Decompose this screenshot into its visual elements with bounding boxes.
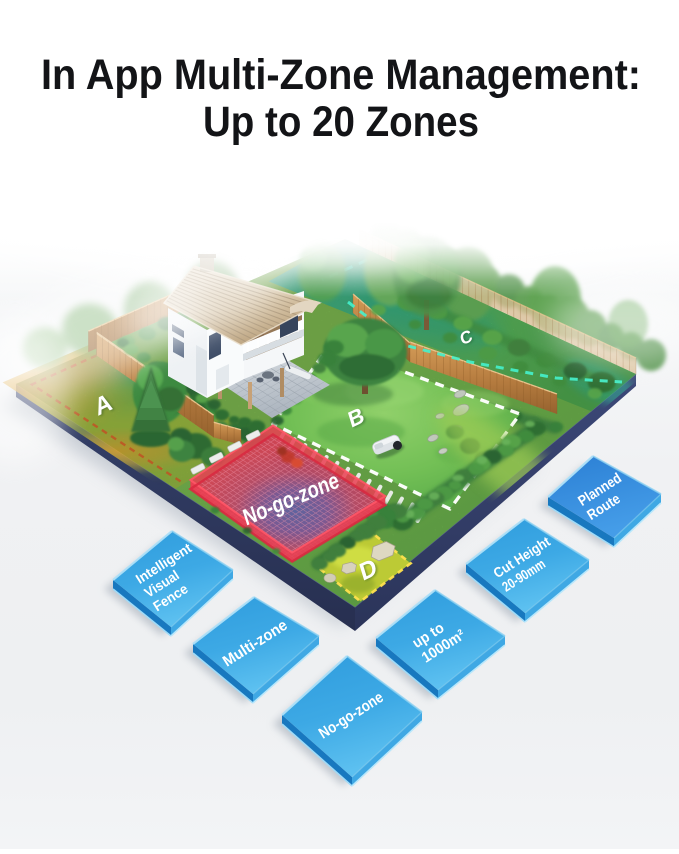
svg-text:Up to 20 Zones: Up to 20 Zones (203, 98, 479, 146)
svg-text:In App Multi-Zone Management:: In App Multi-Zone Management: (41, 51, 641, 99)
